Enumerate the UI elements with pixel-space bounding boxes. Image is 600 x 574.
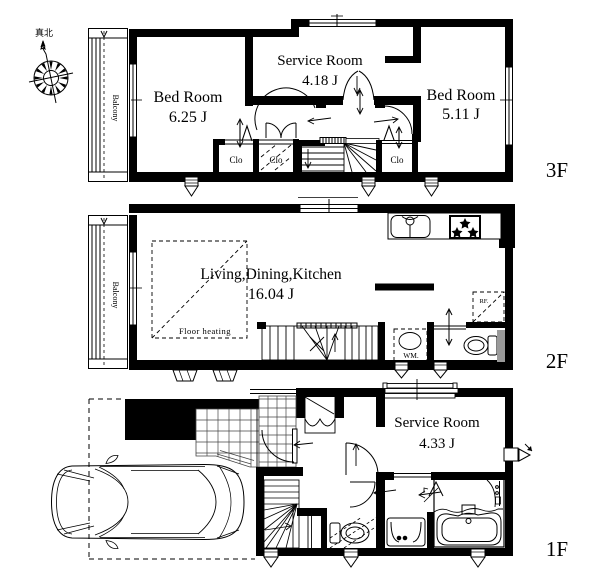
svg-text:Floor heating: Floor heating <box>179 326 231 336</box>
svg-text:WM.: WM. <box>403 351 419 360</box>
svg-text:Clo: Clo <box>390 155 404 165</box>
svg-text:Service Room: Service Room <box>394 415 480 431</box>
svg-text:Bed Room: Bed Room <box>154 89 223 106</box>
svg-text:6.25 J: 6.25 J <box>169 109 207 126</box>
svg-text:4.33 J: 4.33 J <box>419 436 455 452</box>
svg-text:Balcony: Balcony <box>111 95 120 122</box>
svg-text:5.11 J: 5.11 J <box>442 106 480 123</box>
svg-text:16.04 J: 16.04 J <box>248 286 294 303</box>
svg-text:3F: 3F <box>546 158 568 182</box>
svg-text:4.18 J: 4.18 J <box>302 73 338 89</box>
svg-text:2F: 2F <box>546 349 568 373</box>
svg-text:Clo: Clo <box>269 155 283 165</box>
svg-text:真北: 真北 <box>35 27 53 38</box>
svg-text:RF.: RF. <box>479 298 488 305</box>
svg-text:Living,Dining,Kitchen: Living,Dining,Kitchen <box>200 266 341 283</box>
svg-text:1F: 1F <box>546 537 568 561</box>
svg-text:Service Room: Service Room <box>277 53 363 69</box>
svg-text:Bed Room: Bed Room <box>427 87 496 104</box>
svg-text:Clo: Clo <box>229 155 243 165</box>
svg-text:Balcony: Balcony <box>111 282 120 309</box>
